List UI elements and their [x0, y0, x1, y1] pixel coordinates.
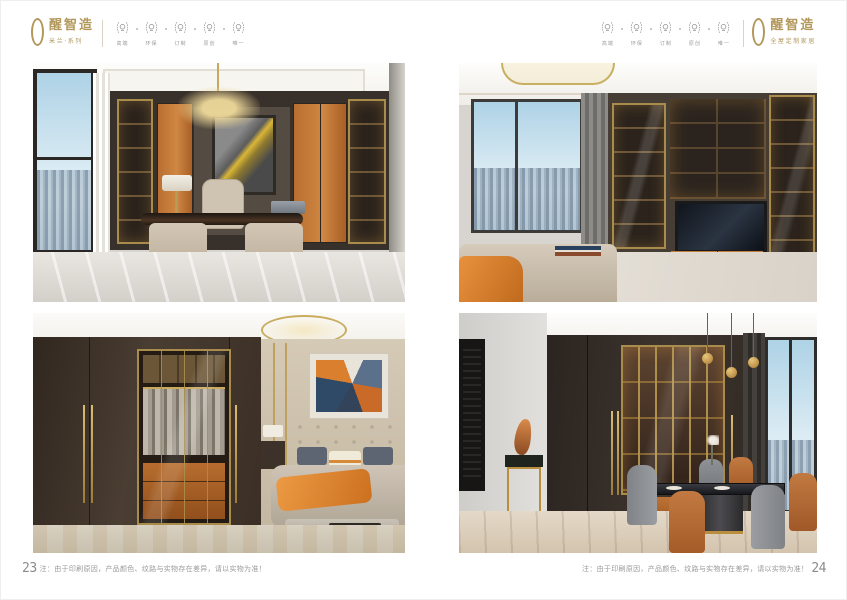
page-number-left: 23	[22, 562, 37, 575]
brand-logo-right: 醒智造 全屋定制家居	[752, 18, 816, 46]
window-frame	[471, 99, 583, 233]
marble-floor	[33, 252, 405, 302]
badge-separator-dot	[679, 28, 681, 30]
crystal-chandelier	[178, 87, 260, 129]
header-divider	[743, 20, 744, 47]
badge-label: 高端	[602, 40, 614, 47]
badge-custom: 订制	[169, 20, 192, 47]
glass-display-column-right	[348, 99, 386, 244]
header-right: 高端 环保 订制 原创 唯一 醒智造 全屋定制家	[596, 18, 816, 47]
badge-separator-dot	[165, 28, 167, 30]
glass-reflection	[139, 351, 229, 523]
badge-label: 订制	[660, 40, 672, 47]
laurel-wreath-icon	[629, 20, 644, 39]
gold-door-handle	[83, 405, 85, 503]
badge-unique: 唯一	[712, 20, 735, 47]
dining-chair-gray	[751, 485, 785, 549]
brand-name: 醒智造	[49, 19, 94, 33]
badge-label: 原创	[204, 40, 216, 47]
logo-oval-icon	[752, 18, 765, 46]
print-disclaimer-note: 注：由于印刷原因，产品颜色、纹路与实物存在差异，请以实物为准！	[582, 564, 808, 574]
brand-tagline: 米兰·系列	[49, 36, 94, 45]
dining-chair-orange	[789, 473, 817, 531]
orange-throw	[459, 256, 523, 302]
marble-veins	[33, 252, 405, 302]
photo-living-room	[459, 63, 817, 302]
door-seam	[320, 104, 321, 242]
gray-curtain	[581, 93, 608, 245]
badge-label: 唯一	[233, 40, 245, 47]
brand-tagline: 全屋定制家居	[770, 36, 816, 45]
glass-wardrobe-section	[137, 349, 231, 525]
gold-wall-trim	[285, 343, 287, 471]
laurel-wreath-icon	[716, 20, 731, 39]
gold-door-handle	[617, 411, 619, 495]
carpet-floor	[33, 525, 405, 553]
header-divider	[102, 20, 103, 47]
place-setting	[666, 486, 682, 490]
dark-doorway	[459, 339, 485, 491]
dining-chair-gray	[627, 465, 657, 525]
badge-original: 原创	[198, 20, 221, 47]
badge-separator-dot	[136, 28, 138, 30]
laurel-wreath-icon	[173, 20, 188, 39]
doorway-blinds	[463, 349, 481, 481]
chandelier	[501, 63, 615, 85]
table-lamp-shade	[162, 175, 192, 191]
pendant-gold-globe	[726, 367, 737, 378]
rug-pattern	[33, 525, 405, 553]
glass-cabinet-left	[612, 103, 666, 249]
laurel-wreath-icon	[115, 20, 130, 39]
city-skyline	[474, 168, 580, 230]
stand-top-box	[505, 455, 543, 467]
laurel-wreath-icon	[202, 20, 217, 39]
gold-door-handle	[91, 405, 93, 503]
door-seam	[587, 335, 588, 525]
photo-dining-room	[459, 313, 817, 553]
pillow-dark	[297, 447, 327, 465]
print-disclaimer-note: 注：由于印刷原因，产品颜色、纹路与实物存在差异，请以实物为准！	[40, 564, 266, 574]
brand-name: 醒智造	[770, 19, 816, 33]
badge-separator-dot	[650, 28, 652, 30]
flower-blooms	[705, 435, 719, 445]
badge-label: 环保	[146, 40, 158, 47]
laurel-wreath-icon	[144, 20, 159, 39]
book-stack	[555, 246, 601, 256]
badge-separator-dot	[708, 28, 710, 30]
header-left: 醒智造 米兰·系列 高端 环保 订制 原创	[31, 18, 250, 47]
badge-separator-dot	[223, 28, 225, 30]
footer-right: 注：由于印刷原因，产品颜色、纹路与实物存在差异，请以实物为准！ 24	[582, 562, 826, 575]
page-number-right: 24	[811, 562, 826, 575]
sheer-curtain	[93, 73, 110, 261]
badge-label: 订制	[175, 40, 187, 47]
laurel-wreath-icon	[231, 20, 246, 39]
window-mullion	[515, 102, 518, 230]
badge-separator-dot	[621, 28, 623, 30]
badge-eco: 环保	[625, 20, 648, 47]
badge-eco: 环保	[140, 20, 163, 47]
laurel-wreath-icon	[600, 20, 615, 39]
badge-unique: 唯一	[227, 20, 250, 47]
brand-logo-left: 醒智造 米兰·系列	[31, 18, 94, 46]
window-mullion	[37, 157, 91, 160]
badge-separator-dot	[194, 28, 196, 30]
laurel-wreath-icon	[658, 20, 673, 39]
badge-label: 高端	[117, 40, 129, 47]
photo-office-study	[33, 63, 405, 302]
logo-oval-icon	[31, 18, 44, 46]
tv-screen	[675, 201, 767, 253]
bedside-lamp	[263, 425, 283, 437]
open-shelving	[670, 99, 766, 199]
badge-premium: 高端	[111, 20, 134, 47]
bedroom-artwork	[309, 353, 389, 419]
city-skyline	[37, 170, 91, 250]
table-lamp-stem	[175, 191, 178, 215]
pillow-dark	[363, 447, 393, 465]
dining-chair-orange	[669, 491, 705, 553]
gold-door-handle	[235, 405, 237, 503]
badge-original: 原创	[683, 20, 706, 47]
pendant-gold-globe	[702, 353, 713, 364]
gold-door-handle	[611, 411, 613, 495]
badge-label: 唯一	[718, 40, 730, 47]
place-setting	[714, 486, 730, 490]
award-badges: 高端 环保 订制 原创 唯一	[111, 20, 250, 47]
badge-premium: 高端	[596, 20, 619, 47]
badge-label: 原创	[689, 40, 701, 47]
award-badges: 高端 环保 订制 原创 唯一	[596, 20, 735, 47]
pendant-gold-globe	[748, 357, 759, 368]
photo-bedroom	[33, 313, 405, 553]
pendant-cord	[753, 313, 754, 359]
catalog-spread: 醒智造 米兰·系列 高端 环保 订制 原创	[0, 0, 847, 600]
badge-label: 环保	[631, 40, 643, 47]
footer-left: 23 注：由于印刷原因，产品颜色、纹路与实物存在差异，请以实物为准！	[22, 562, 266, 575]
artwork-geometric	[316, 360, 382, 412]
window-frame	[33, 69, 97, 254]
door-seam	[89, 337, 90, 525]
pendant-cord	[731, 313, 732, 369]
laurel-wreath-icon	[687, 20, 702, 39]
right-wall-sliver	[389, 63, 405, 253]
pendant-cord	[707, 313, 708, 355]
badge-custom: 订制	[654, 20, 677, 47]
glass-reflection	[614, 105, 664, 247]
